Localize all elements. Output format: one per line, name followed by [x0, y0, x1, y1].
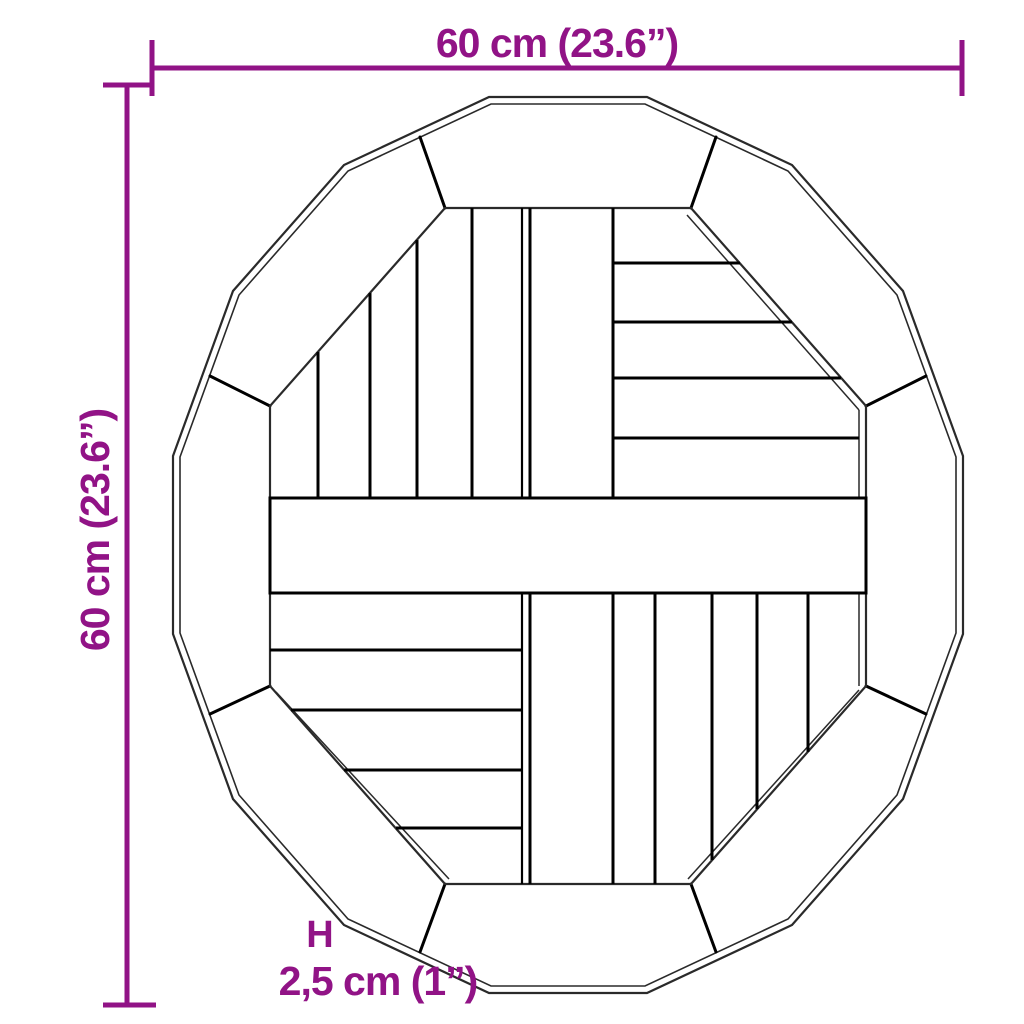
rim-joint: [210, 376, 270, 406]
rim-joint: [420, 137, 445, 208]
chamfer-line: [688, 690, 859, 879]
chamfer-line: [687, 215, 859, 410]
rim-joint: [691, 884, 716, 952]
height-dimension-label: 60 cm (23.6”): [72, 409, 118, 651]
dimension-height: 60 cm (23.6”): [72, 85, 156, 1005]
rim-joint: [691, 137, 716, 208]
chamfer-line: [276, 692, 449, 879]
central-horizontal-plank: [270, 498, 866, 593]
dimension-thickness: H 2,5 cm (1”): [279, 914, 478, 1004]
rim-joint: [420, 884, 445, 952]
thickness-dimension-label: 2,5 cm (1”): [279, 958, 478, 1004]
rim-joint: [866, 376, 926, 406]
planks-top-left-quadrant: [318, 208, 472, 498]
planks-top-right-quadrant: [613, 263, 859, 438]
planks-bottom-left-quadrant: [270, 650, 522, 828]
dimension-diagram-page: 60 cm (23.6”) 60 cm (23.6”) H 2,5 cm (1”…: [0, 0, 1024, 1024]
thickness-marker: H: [306, 914, 333, 956]
dimension-width: 60 cm (23.6”): [152, 20, 962, 96]
rim-joint: [866, 686, 926, 714]
planter-top-drawing: [173, 97, 963, 993]
round-wooden-top-dimension-drawing: 60 cm (23.6”) 60 cm (23.6”) H 2,5 cm (1”…: [0, 0, 1024, 1024]
planks-bottom-right-quadrant: [655, 593, 808, 884]
rim-joint: [210, 686, 270, 714]
width-dimension-label: 60 cm (23.6”): [436, 20, 678, 66]
